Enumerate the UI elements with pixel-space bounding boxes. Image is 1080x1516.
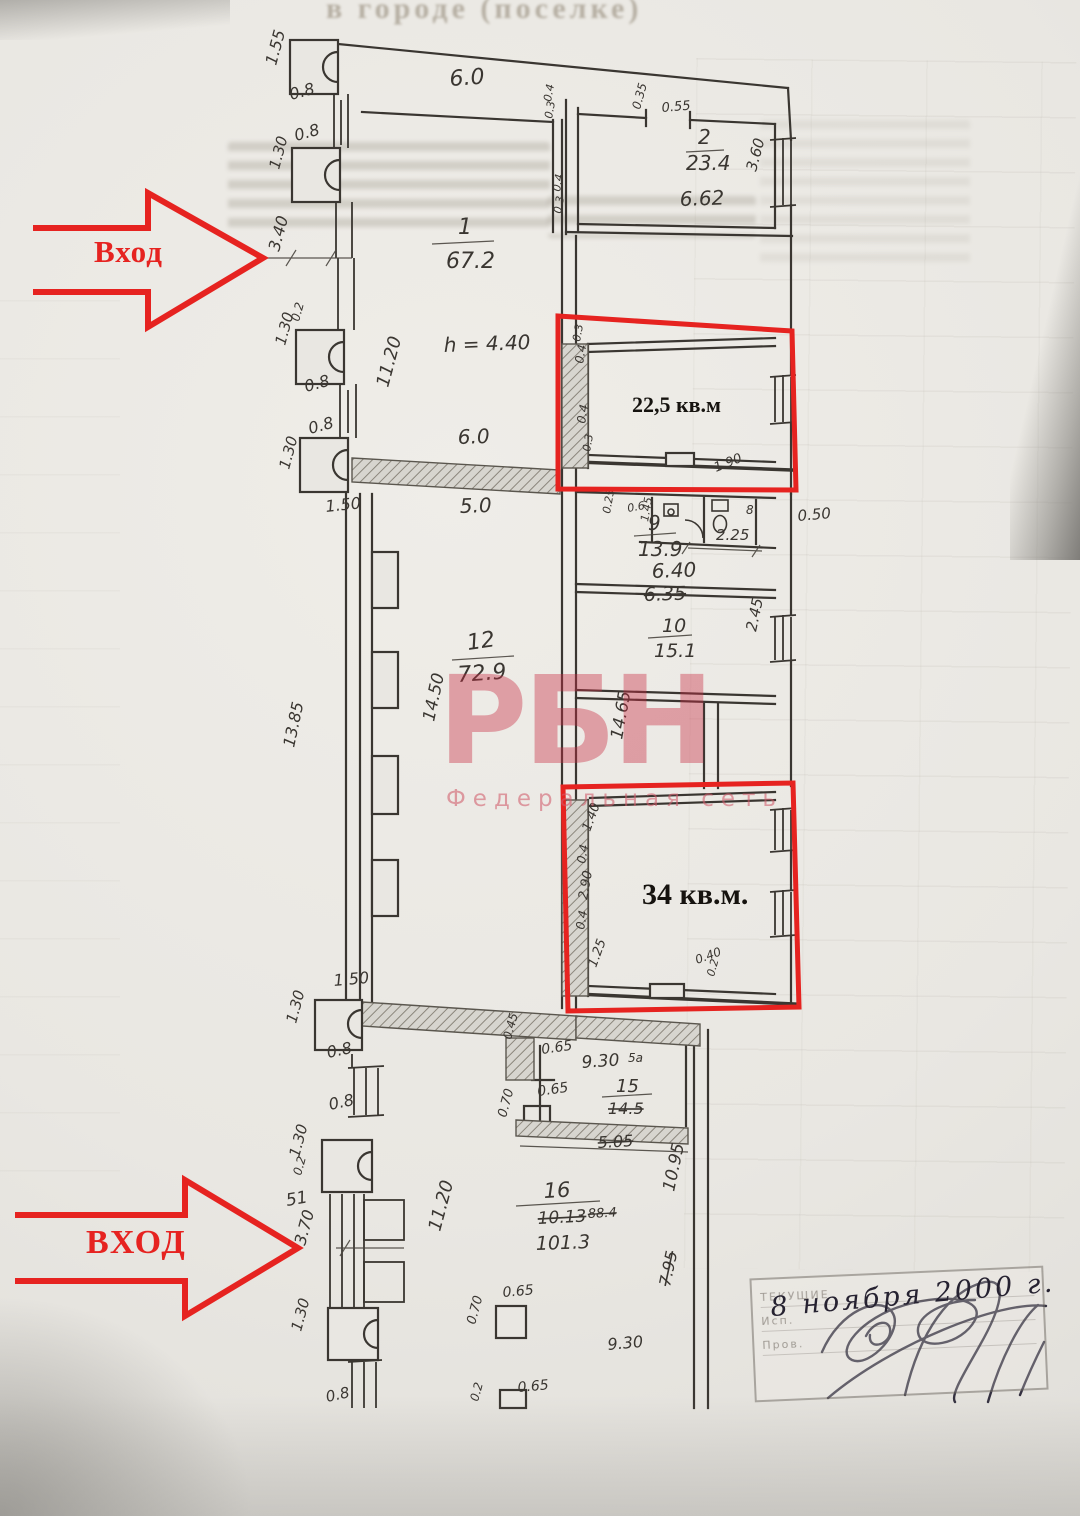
dim-label: 2.25 (716, 526, 749, 544)
dim-label: 13.85 (279, 700, 307, 749)
dim-label: 51 (284, 1187, 309, 1210)
dim-label: 9.30 (581, 1050, 620, 1073)
dim-label: 0.3 (570, 323, 586, 342)
dim-label: 1 (458, 215, 472, 240)
dim-label: 1.30 (285, 1122, 311, 1159)
dim-label: 6.35 (643, 583, 686, 606)
dim-label: 11.20 (373, 334, 407, 389)
dim-label: 0.65 (502, 1282, 535, 1301)
watermark-logo: РБН (438, 660, 711, 782)
dim-label: 6.62 (679, 185, 724, 211)
dim-label: 15 (616, 1076, 639, 1097)
dim-label: 67.2 (446, 249, 495, 274)
dim-label: 1.50 (333, 968, 370, 990)
dim-label: 14.5 (608, 1099, 644, 1118)
dim-label: 6.0 (449, 65, 486, 92)
dim-label: 6.0 (457, 424, 490, 449)
dim-label: 10 (662, 615, 686, 637)
dim-label: 1.25 (586, 937, 610, 969)
dim-label: 9.30 (607, 1332, 644, 1354)
dim-label: 0.65 (540, 1038, 573, 1058)
page-edge-shadow-bottom (0, 1396, 1080, 1516)
dim-label: 0.4 (541, 83, 557, 102)
dim-label: 0.8 (325, 1038, 354, 1062)
dim-label: 0.50 (797, 504, 832, 525)
dim-label: 1.50 (324, 493, 361, 516)
dim-label: 5.0 (459, 493, 492, 518)
dim-label: 5а (628, 1051, 643, 1065)
dim-label: 1.90 (712, 451, 744, 476)
dim-label: 0.65 (536, 1080, 569, 1100)
dim-label: 101.3 (535, 1231, 590, 1255)
dim-label: 5.05 (597, 1131, 634, 1152)
dim-label: 0.70 (464, 1294, 486, 1326)
dim-label: 0.70 (495, 1087, 517, 1119)
dim-label: 0.8 (327, 1090, 356, 1114)
dim-label: 8 (746, 503, 754, 517)
dim-label: 0.8 (306, 413, 336, 438)
dim-label: 11.20 (425, 1178, 459, 1233)
dim-label: 9 (648, 511, 661, 535)
dim-label: 3.70 (291, 1208, 319, 1247)
dim-label: 6.40 (651, 557, 696, 583)
area-label-22-5: 22,5 кв.м (632, 392, 721, 418)
dim-label: 10.13 (537, 1206, 587, 1229)
dim-label: 88.4 (587, 1205, 617, 1221)
entrance-label-top: Вход (94, 234, 163, 270)
dim-label: 16 (543, 1178, 571, 1203)
area-label-34: 34 кв.м. (642, 878, 748, 912)
dim-label: 0.25 (600, 488, 617, 514)
dim-label: 1.30 (275, 434, 301, 471)
dim-label: h = 4.40 (443, 330, 530, 357)
dim-label: 0.8 (292, 120, 322, 145)
dim-label: 3.60 (742, 136, 768, 173)
dim-label: 1.30 (282, 988, 308, 1025)
dim-label: 0.3 (580, 433, 596, 452)
dim-label: 3.40 (265, 214, 293, 253)
dim-label: 0.3 (542, 100, 558, 119)
dim-label: 2 (698, 125, 711, 149)
dim-label: 0.65 (517, 1377, 550, 1396)
dim-label: 10.95 (659, 1141, 689, 1193)
dim-label: 2.45 (742, 596, 767, 632)
dim-label: 0.4 (550, 173, 566, 192)
dim-label: 0.3 (551, 195, 567, 214)
dim-label: 7.95 (655, 1249, 681, 1288)
stamp-row-label: Пров. (762, 1327, 1036, 1356)
page-edge-shadow-top-left (0, 0, 230, 40)
dim-label: 1.30 (265, 134, 291, 171)
dim-label: 0.55 (661, 99, 691, 116)
dim-label: 0.35 (629, 81, 649, 110)
dim-label: 23.4 (686, 151, 731, 175)
dim-label: 1.30 (271, 310, 297, 347)
watermark-subtitle: Федеральная сеть (446, 786, 783, 812)
dim-label: 1.55 (262, 28, 290, 67)
dim-label: 0.2 (290, 1155, 308, 1177)
